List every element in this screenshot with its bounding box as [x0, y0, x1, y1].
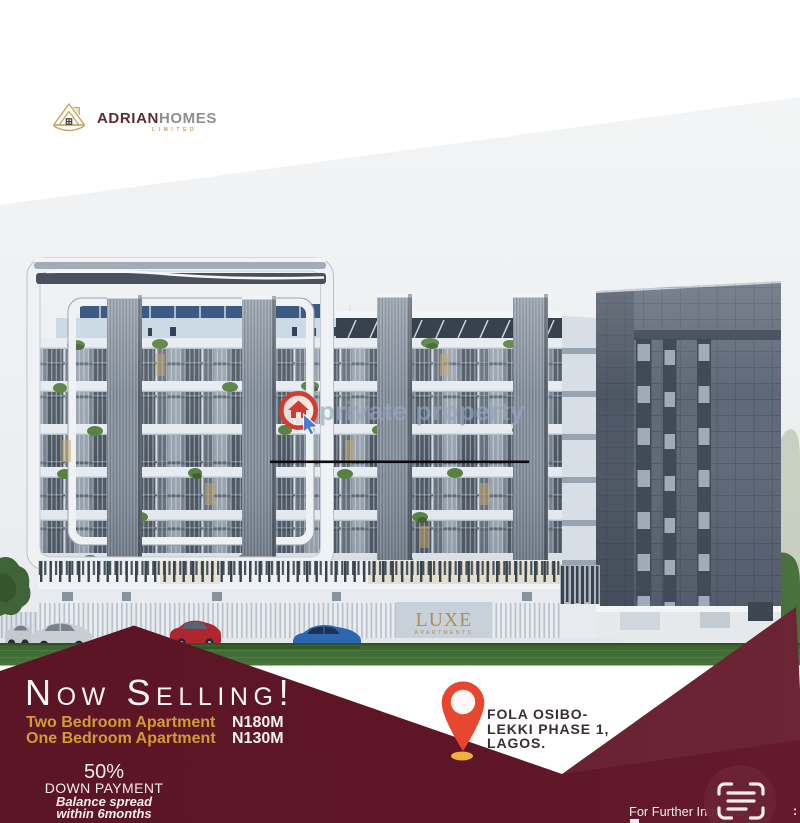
svg-text:APARTMENTS: APARTMENTS	[415, 630, 474, 636]
svg-text:LUXE: LUXE	[416, 610, 473, 631]
